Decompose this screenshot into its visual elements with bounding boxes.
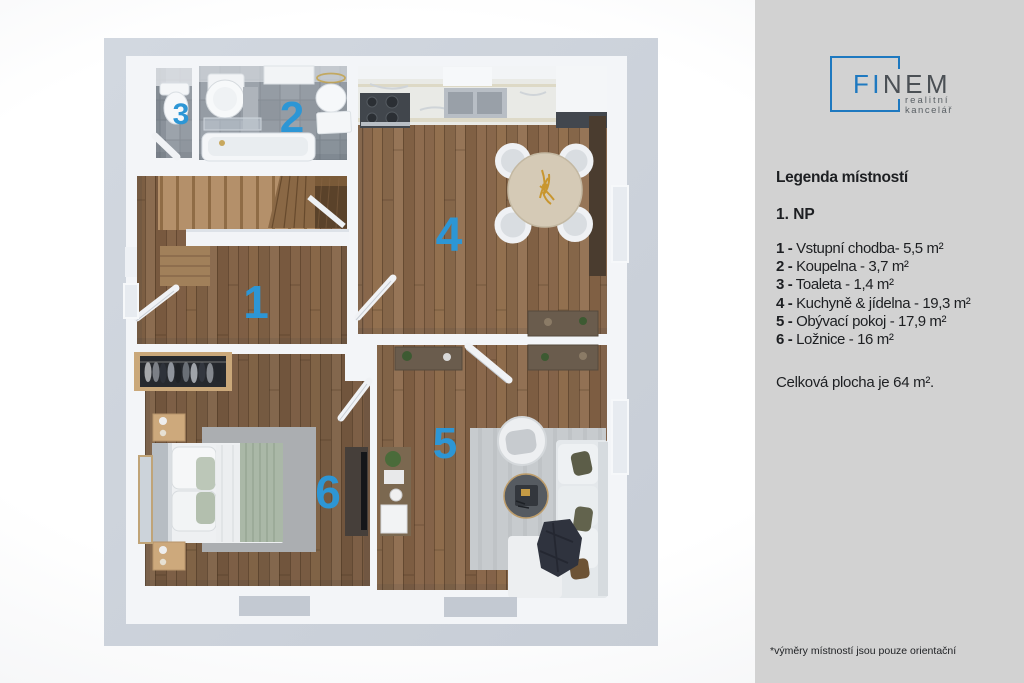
svg-text:4: 4	[436, 209, 463, 262]
svg-text:6: 6	[315, 466, 341, 518]
svg-text:1: 1	[243, 276, 269, 328]
svg-text:3: 3	[173, 98, 190, 131]
svg-text:5: 5	[433, 419, 457, 468]
svg-text:2: 2	[280, 93, 304, 142]
